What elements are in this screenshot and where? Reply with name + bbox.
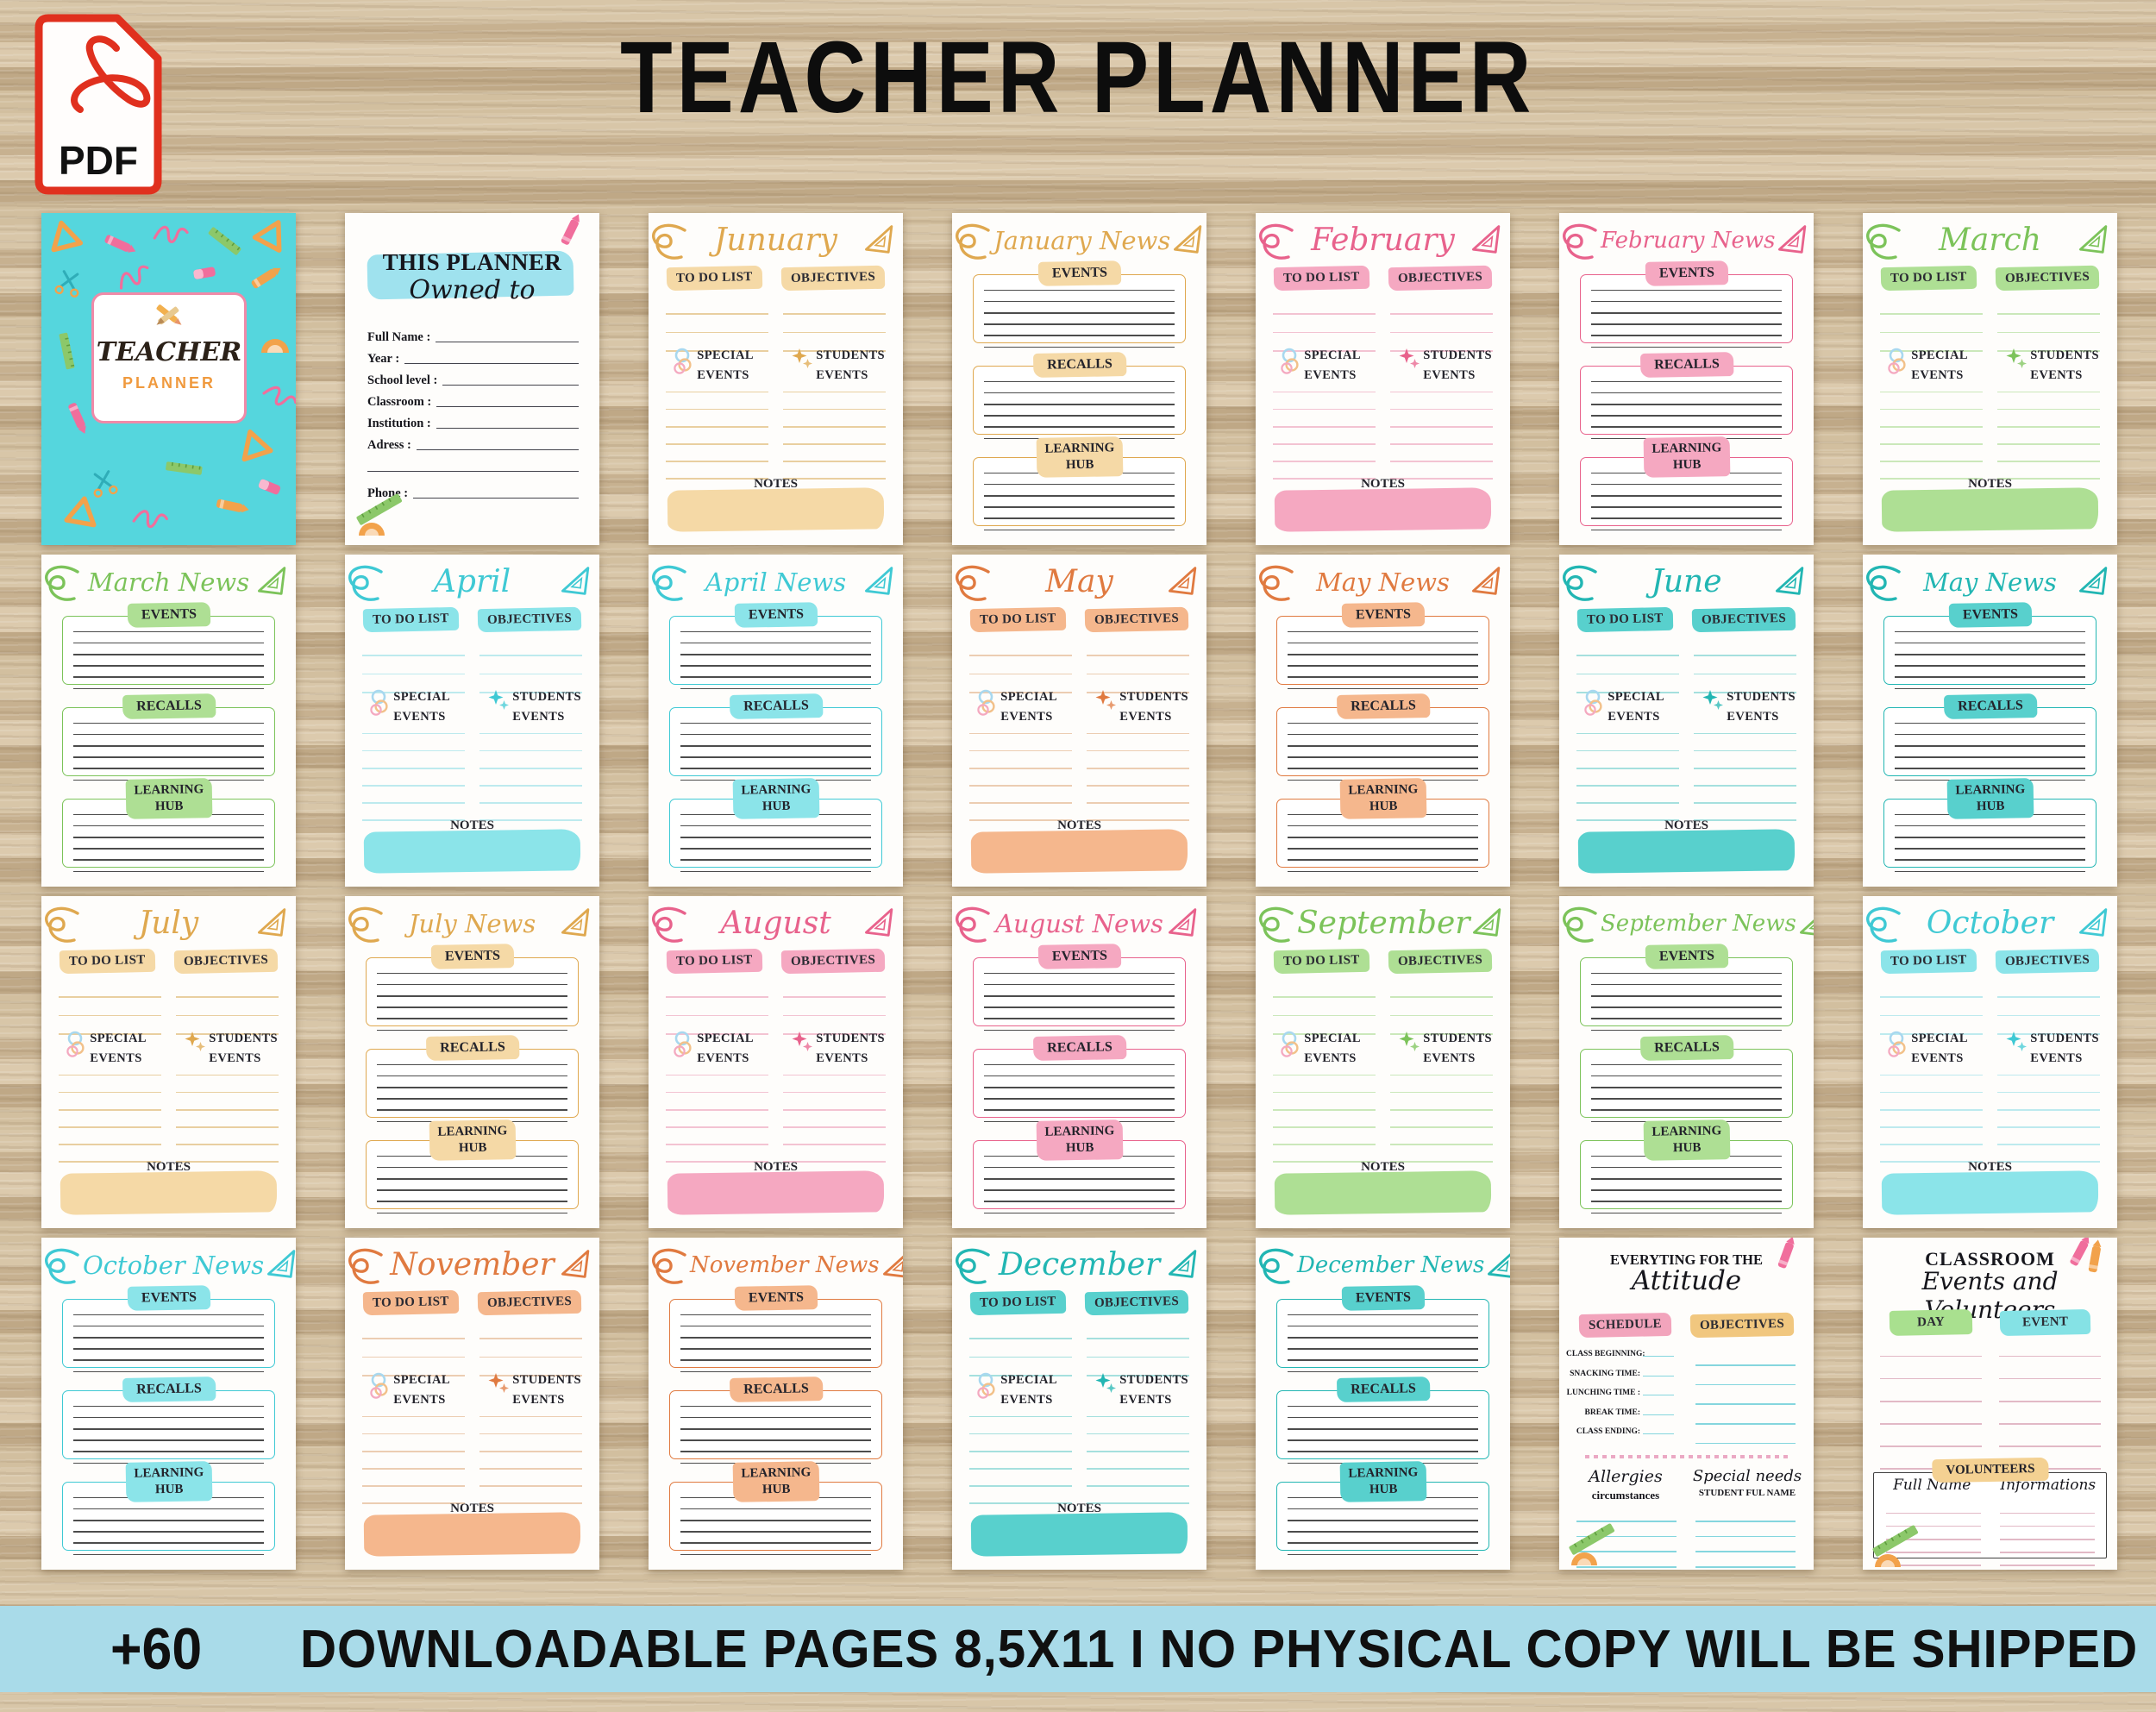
writing-line — [1273, 313, 1376, 315]
objectives-label: OBJECTIVES — [1388, 266, 1492, 292]
objectives-label: OBJECTIVES — [1995, 949, 2099, 975]
writing-line — [984, 1201, 1175, 1202]
writing-line — [73, 1428, 264, 1430]
set-square-icon — [1796, 905, 1814, 944]
writing-line — [1087, 1357, 1189, 1358]
writing-line — [73, 825, 264, 827]
lines-column — [1273, 1058, 1376, 1163]
writing-line — [377, 1007, 567, 1008]
notes-area — [1275, 1170, 1492, 1214]
writing-line — [1273, 1126, 1376, 1128]
lines-column — [969, 717, 1072, 821]
writing-line — [1390, 996, 1493, 998]
notes-label: NOTES — [41, 1160, 296, 1175]
lines-column — [2000, 1501, 2095, 1566]
writing-line — [984, 335, 1175, 336]
objectives-label: OBJECTIVES — [477, 607, 581, 633]
events-section-label: EVENTS — [1645, 944, 1728, 969]
sparkle-icon — [792, 1029, 813, 1059]
lines-column — [666, 1058, 768, 1163]
writing-line — [1997, 996, 2100, 998]
writing-line — [1288, 825, 1478, 827]
card-title: December — [993, 1250, 1165, 1281]
card-header: March — [1865, 216, 2114, 265]
writing-line — [783, 1144, 886, 1145]
card-header: August — [650, 900, 899, 948]
writing-line — [73, 1554, 264, 1556]
lines-column — [1087, 1400, 1189, 1504]
cover-doodle-icon — [254, 374, 296, 422]
card-header: October News — [43, 1241, 292, 1289]
writing-line — [1895, 825, 2085, 827]
writing-line — [1895, 745, 2085, 747]
writing-line — [1880, 1378, 1982, 1380]
notes-area — [971, 829, 1188, 873]
card-header: July — [43, 900, 292, 948]
writing-line — [1997, 1126, 2100, 1128]
lines-column — [969, 1320, 1072, 1376]
writing-line — [362, 1485, 465, 1487]
lines-column — [783, 1058, 886, 1163]
fill-in-line — [417, 449, 579, 450]
writing-line — [1273, 1075, 1376, 1076]
writing-line — [1880, 313, 1983, 315]
writing-line — [1273, 996, 1376, 998]
writing-line — [984, 312, 1175, 314]
learning-hub-section-label: LEARNING HUB — [1036, 436, 1123, 477]
cover-doodle-icon — [42, 215, 86, 260]
writing-line — [783, 1092, 886, 1094]
set-square-icon — [1470, 905, 1506, 944]
fill-in-line — [367, 471, 579, 472]
writing-line — [680, 1337, 871, 1339]
writing-line — [59, 1015, 161, 1017]
card-title: November — [386, 1250, 558, 1281]
lines-column — [1273, 296, 1376, 352]
notes-label: NOTES — [952, 1502, 1206, 1516]
card-title: Junuary — [690, 225, 862, 256]
writing-line — [1288, 1554, 1478, 1556]
writing-line — [680, 723, 871, 724]
column-header-row: TO DO LIST OBJECTIVES — [1256, 267, 1510, 290]
lines-column — [479, 717, 582, 821]
writing-line — [1087, 1338, 1189, 1339]
writing-line — [1288, 1371, 1478, 1373]
writing-line — [377, 1018, 567, 1019]
writing-line — [1273, 392, 1376, 393]
lines-column — [1087, 637, 1189, 693]
writing-line — [1895, 688, 2085, 690]
set-square-icon — [2076, 563, 2112, 602]
planner-page-news: July News EVENTS RECALLS LEARNING HUB — [345, 896, 599, 1228]
writing-line — [1087, 733, 1189, 735]
writing-line — [1591, 290, 1782, 292]
bottom-banner: +60 DOWNLOADABLE PAGES 8,5X11 I NO PHYSI… — [0, 1606, 2156, 1692]
fill-in-line — [1643, 1395, 1674, 1395]
writing-line — [1880, 1126, 1983, 1128]
writing-line — [680, 1451, 871, 1452]
writing-line — [1591, 495, 1782, 497]
events-section-label: EVENTS — [1037, 944, 1121, 969]
writing-line — [1895, 665, 2085, 667]
set-square-icon — [2076, 222, 2112, 260]
writing-line — [1087, 1451, 1189, 1452]
lines-column — [1087, 1320, 1189, 1376]
card-title: August — [690, 908, 862, 939]
event-label: EVENT — [1999, 1309, 2090, 1336]
writing-line — [377, 1087, 567, 1088]
writing-line — [377, 973, 567, 975]
schedule-label: SCHEDULE — [1578, 1313, 1670, 1338]
squiggle-doodle-icon — [952, 222, 993, 267]
card-title: August News — [993, 912, 1165, 937]
lines-column — [362, 1400, 465, 1504]
lines-column — [1273, 979, 1376, 1035]
writing-line — [362, 1357, 465, 1358]
writing-line — [1591, 1064, 1782, 1066]
card-header: May News — [1257, 558, 1507, 606]
writing-line — [984, 1030, 1175, 1032]
writing-line — [73, 654, 264, 655]
writing-line — [176, 996, 279, 998]
card-header: September News — [1561, 900, 1810, 948]
writing-line — [1591, 1030, 1782, 1032]
objectives-label: OBJECTIVES — [1995, 266, 2099, 292]
writing-line — [680, 1520, 871, 1521]
writing-line — [1288, 1314, 1478, 1316]
recalls-section-label: RECALLS — [1336, 1376, 1429, 1402]
owner-field-row: Full Name : — [367, 323, 579, 345]
writing-line — [1273, 1109, 1376, 1111]
writing-line — [680, 1428, 871, 1430]
writing-line — [73, 665, 264, 667]
writing-line — [73, 1542, 264, 1544]
writing-line — [1273, 1144, 1376, 1145]
writing-line — [1591, 1201, 1782, 1202]
set-square-icon — [1775, 222, 1811, 260]
todo-list-label: TO DO LIST — [970, 607, 1066, 632]
writing-line — [73, 1314, 264, 1316]
learning-hub-section-label: LEARNING HUB — [429, 1119, 516, 1160]
planner-owner-page: THIS PLANNER Owned to Full Name :Year :S… — [345, 213, 599, 545]
fill-in-line — [1643, 1414, 1674, 1415]
planner-page-news: November News EVENTS RECALLS LEARNING HU… — [649, 1238, 903, 1570]
writing-line — [1880, 1109, 1983, 1111]
writing-line — [176, 1015, 279, 1017]
set-square-icon — [1469, 222, 1505, 260]
writing-line — [680, 848, 871, 850]
planner-page-news: January News EVENTS RECALLS LEARNING HUB — [952, 213, 1206, 545]
writing-line — [59, 1109, 161, 1111]
writing-line — [73, 631, 264, 633]
planner-page-month: December TO DO LIST OBJECTIVES SPECIAL E… — [952, 1238, 1206, 1570]
notes-label: NOTES — [649, 1160, 903, 1175]
writing-line — [1999, 1401, 2101, 1402]
writing-line — [1880, 1356, 1982, 1358]
lines-column — [1390, 296, 1493, 352]
writing-line — [73, 1337, 264, 1339]
cover-doodle-icon — [245, 270, 285, 292]
planner-page-news: April News EVENTS RECALLS LEARNING HUB — [649, 555, 903, 887]
writing-line — [1591, 1007, 1782, 1008]
page-header: TEACHER PLANNER — [0, 19, 2156, 136]
squiggle-doodle-icon — [1559, 905, 1601, 950]
special-needs-bold-label: STUDENT FUL NAME — [1689, 1488, 1806, 1498]
writing-line — [1591, 530, 1782, 531]
lines-column — [1390, 375, 1493, 480]
squiggle-doodle-icon — [41, 1246, 83, 1292]
writing-line — [984, 381, 1175, 383]
writing-line — [1390, 443, 1493, 445]
lines-column — [1880, 375, 1983, 480]
sparkle-icon — [1095, 687, 1117, 718]
schedule-row: BREAK TIME: — [1566, 1408, 1680, 1417]
owner-field-label: School level : — [367, 373, 437, 388]
writing-line — [984, 290, 1175, 292]
writing-line — [969, 802, 1072, 804]
objectives-label: OBJECTIVES — [1691, 607, 1796, 633]
writing-line — [1288, 1348, 1478, 1350]
writing-line — [680, 1406, 871, 1408]
writing-line — [1591, 984, 1782, 986]
writing-line — [1880, 1015, 1983, 1017]
writing-line — [362, 1433, 465, 1435]
writing-line — [1273, 409, 1376, 411]
writing-line — [984, 404, 1175, 405]
writing-line — [1895, 643, 2085, 644]
product-listing-image: PDF TEACHER PLANNER TEACHER PLANNER THIS… — [0, 0, 2156, 1712]
lines-column — [969, 1400, 1072, 1504]
cover-brand-line2: PLANNER — [94, 374, 244, 392]
card-title: November News — [690, 1254, 880, 1276]
writing-line — [73, 1451, 264, 1452]
card-header: April News — [650, 558, 899, 606]
writing-line — [1591, 323, 1782, 325]
column-header-row: DAY EVENT — [1863, 1310, 2117, 1335]
recalls-section-label: RECALLS — [729, 1376, 822, 1402]
objectives-column — [1695, 1346, 1796, 1444]
writing-line — [1288, 745, 1478, 747]
writing-line — [1880, 1423, 1982, 1425]
events-section-label: EVENTS — [430, 944, 514, 969]
writing-line — [783, 461, 886, 462]
card-header: September — [1257, 900, 1507, 948]
writing-line — [479, 1416, 582, 1418]
fill-in-line — [1643, 1433, 1674, 1434]
writing-line — [1591, 973, 1782, 975]
lines-column — [783, 375, 886, 480]
writing-line — [1288, 1451, 1478, 1452]
writing-line — [73, 643, 264, 644]
owner-field-label: Adress : — [367, 438, 411, 453]
writing-line — [783, 1075, 886, 1076]
writing-line — [362, 1416, 465, 1418]
notes-label: NOTES — [1559, 818, 1814, 833]
recalls-section-label: RECALLS — [1032, 352, 1125, 378]
card-header: February — [1257, 216, 1507, 265]
objectives-label: OBJECTIVES — [1690, 1313, 1795, 1339]
todo-list-label: TO DO LIST — [1881, 266, 1977, 291]
writing-line — [1087, 1485, 1189, 1487]
lines-column — [362, 1320, 465, 1376]
writing-line — [73, 734, 264, 736]
writing-line — [1895, 756, 2085, 758]
writing-line — [680, 688, 871, 690]
writing-line — [377, 1167, 567, 1169]
writing-line — [1390, 1015, 1493, 1017]
writing-line — [1694, 750, 1796, 752]
volunteers-label: VOLUNTEERS — [1932, 1458, 2049, 1483]
writing-line — [984, 1098, 1175, 1100]
sparkle-icon — [2006, 1029, 2028, 1059]
writing-line — [666, 1092, 768, 1094]
set-square-icon — [1484, 1246, 1510, 1285]
writing-line — [1390, 426, 1493, 428]
column-header-row: TO DO LIST OBJECTIVES — [1256, 950, 1510, 973]
writing-line — [1288, 756, 1478, 758]
writing-line — [984, 1167, 1175, 1169]
card-title: December News — [1297, 1254, 1484, 1276]
squiggle-doodle-icon — [1559, 222, 1601, 267]
planner-page-news: December News EVENTS RECALLS LEARNING HU… — [1256, 1238, 1510, 1570]
writing-line — [680, 1439, 871, 1441]
writing-line — [1895, 768, 2085, 769]
card-title: May News — [1297, 570, 1469, 595]
writing-line — [666, 392, 768, 393]
writing-line — [73, 1531, 264, 1533]
writing-line — [1694, 802, 1796, 804]
writing-line — [1895, 859, 2085, 861]
writing-line — [1591, 335, 1782, 336]
squiggle-doodle-icon — [1256, 905, 1297, 950]
writing-line — [680, 859, 871, 861]
card-title: June — [1601, 567, 1772, 598]
owner-field-label: Institution : — [367, 417, 431, 431]
writing-line — [969, 1357, 1072, 1358]
planner-attitude-page: EVERYTING FOR THE Attitude SCHEDULE OBJE… — [1559, 1238, 1814, 1570]
lines-column — [666, 375, 768, 480]
schedule-row: CLASS BEGINNING: — [1566, 1350, 1680, 1358]
writing-line — [680, 665, 871, 667]
writing-line — [680, 1348, 871, 1350]
writing-line — [783, 443, 886, 445]
todo-list-label: TO DO LIST — [667, 266, 762, 291]
writing-line — [479, 785, 582, 787]
lines-column — [1273, 375, 1376, 480]
owner-field-label: Full Name : — [367, 330, 430, 345]
writing-line — [984, 517, 1175, 519]
learning-hub-section-label: LEARNING HUB — [1643, 1119, 1730, 1160]
column-header-row: TO DO LIST OBJECTIVES — [41, 950, 296, 973]
writing-line — [969, 1433, 1072, 1435]
writing-line — [1880, 1075, 1983, 1076]
card-title: February — [1297, 225, 1469, 256]
card-header: March News — [43, 558, 292, 606]
writing-line — [1997, 426, 2100, 428]
lines-column — [1695, 1507, 1796, 1568]
planner-page-month: June TO DO LIST OBJECTIVES SPECIAL EVENT… — [1559, 555, 1814, 887]
writing-line — [984, 495, 1175, 497]
writing-line — [176, 1144, 279, 1145]
writing-line — [984, 1189, 1175, 1191]
writing-line — [1694, 733, 1796, 735]
sparkle-icon — [792, 346, 813, 376]
writing-line — [1087, 768, 1189, 769]
writing-line — [1880, 392, 1983, 393]
recalls-section-label: RECALLS — [1336, 693, 1429, 719]
sparkle-icon — [1399, 346, 1420, 376]
planner-page-month: September TO DO LIST OBJECTIVES SPECIAL … — [1256, 896, 1510, 1228]
writing-line — [984, 1213, 1175, 1214]
fill-in-line — [442, 385, 579, 386]
squiggle-doodle-icon — [1863, 222, 1904, 267]
writing-line — [1997, 443, 2100, 445]
writing-line — [1390, 1075, 1493, 1076]
lines-column — [1997, 375, 2100, 480]
learning-hub-section-label: LEARNING HUB — [1339, 1461, 1426, 1502]
notes-area — [971, 1512, 1188, 1556]
writing-line — [666, 1015, 768, 1017]
card-title: March — [1904, 225, 2076, 256]
lines-column — [1087, 717, 1189, 821]
writing-line — [1895, 848, 2085, 850]
writing-line — [73, 676, 264, 678]
writing-line — [176, 1109, 279, 1111]
cover-doodle-icon — [163, 459, 204, 482]
objectives-label: OBJECTIVES — [1084, 1290, 1188, 1316]
fill-in-line — [1643, 1356, 1674, 1357]
notes-area — [364, 1512, 581, 1556]
schedule-row: SNACKING TIME: — [1566, 1370, 1680, 1378]
lines-column — [479, 1400, 582, 1504]
card-header: December — [954, 1241, 1203, 1289]
planner-page-month: February TO DO LIST OBJECTIVES SPECIAL E… — [1256, 213, 1510, 545]
lines-column — [1576, 717, 1679, 821]
writing-line — [362, 733, 465, 735]
writing-line — [73, 871, 264, 873]
set-square-icon — [1165, 1246, 1201, 1285]
squiggle-doodle-icon — [41, 905, 83, 950]
writing-line — [680, 1508, 871, 1510]
writing-line — [1895, 676, 2085, 678]
objectives-label: OBJECTIVES — [780, 949, 885, 975]
card-title: September — [1297, 908, 1470, 939]
writing-line — [984, 484, 1175, 486]
writing-line — [1591, 404, 1782, 405]
lines-column — [1880, 1058, 1983, 1163]
lines-column — [1694, 637, 1796, 693]
writing-line — [984, 506, 1175, 508]
owner-subheading: Owned to — [345, 275, 599, 305]
writing-line — [176, 1126, 279, 1128]
card-title: July — [83, 908, 254, 939]
todo-list-label: TO DO LIST — [667, 949, 762, 974]
writing-line — [1591, 1075, 1782, 1077]
squiggle-doodle-icon — [649, 1246, 690, 1292]
writing-line — [1695, 1521, 1796, 1522]
fill-in-line — [436, 428, 579, 429]
writing-line — [1880, 409, 1983, 411]
set-square-icon — [1165, 905, 1201, 944]
notes-label: NOTES — [345, 1502, 599, 1516]
writing-line — [1087, 802, 1189, 804]
writing-line — [377, 1030, 567, 1032]
writing-line — [1997, 392, 2100, 393]
writing-line — [1997, 1075, 2100, 1076]
writing-line — [666, 426, 768, 428]
planner-page-month: May TO DO LIST OBJECTIVES SPECIAL EVENTS… — [952, 555, 1206, 887]
lines-column — [1880, 296, 1983, 352]
